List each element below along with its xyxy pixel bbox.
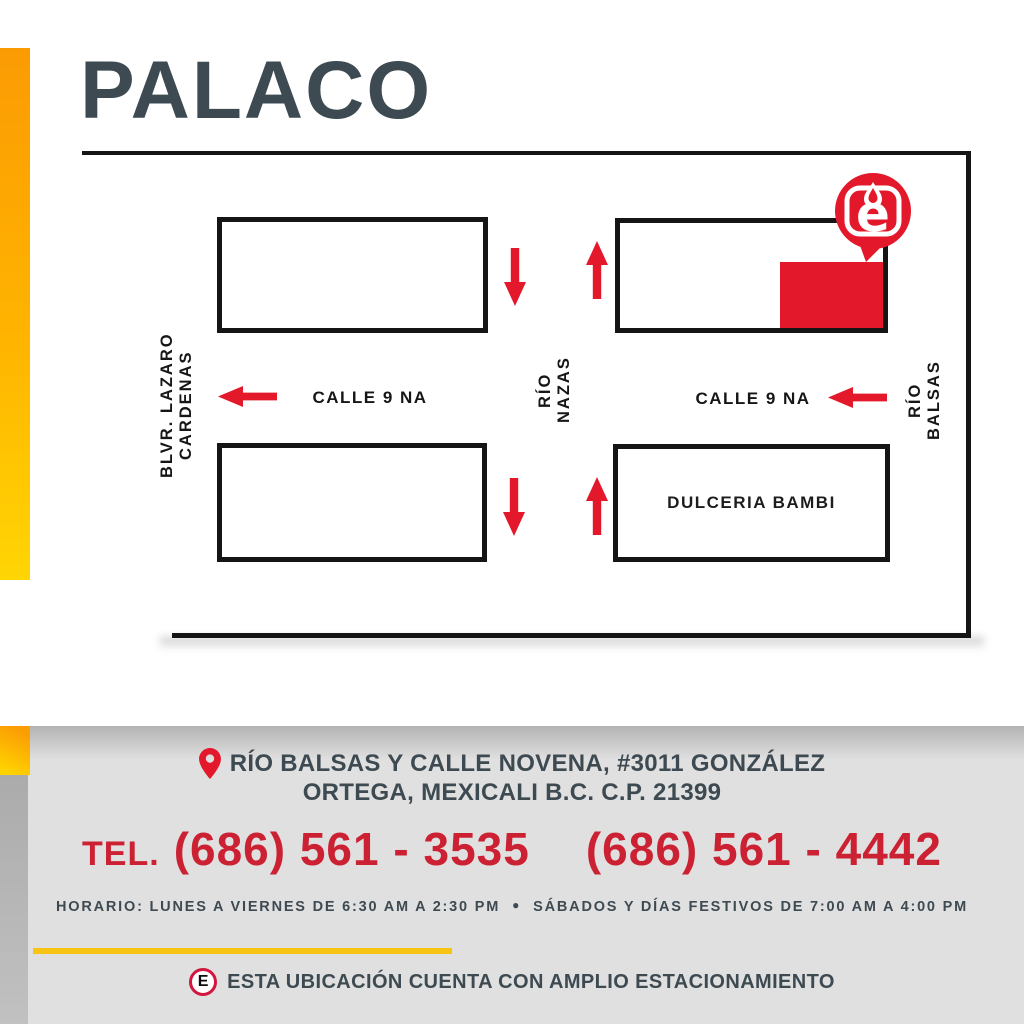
phone-block: TEL. (686) 561 - 3535 (686) 561 - 4442 bbox=[0, 822, 1024, 876]
hours-block: HORARIO: LUNES A VIERNES DE 6:30 AM A 2:… bbox=[0, 898, 1024, 915]
street-label-rio-balsas: RÍO BALSAS bbox=[906, 341, 944, 459]
left-accent-stripe bbox=[0, 726, 30, 775]
address-line2: ORTEGA, MEXICALI B.C. C.P. 21399 bbox=[0, 779, 1024, 807]
left-orange-stripe bbox=[0, 48, 30, 580]
arrow-left-icon bbox=[218, 386, 277, 407]
hours-weekdays: HORARIO: LUNES A VIERNES DE 6:30 AM A 2:… bbox=[56, 899, 500, 915]
left-gray-stripe bbox=[0, 775, 28, 1024]
arrow-up-icon bbox=[586, 477, 608, 535]
map-border-top bbox=[82, 151, 970, 155]
map-shadow bbox=[160, 637, 984, 650]
arrow-down-icon bbox=[504, 248, 526, 306]
parking-note: ESTA UBICACIÓN CUENTA CON AMPLIO ESTACIO… bbox=[227, 971, 835, 994]
flyer-page: PALACO DULCERIA BAMBI BLVR. LAZARO CARDE… bbox=[0, 0, 1024, 1024]
city-block-lower-left bbox=[217, 443, 487, 562]
address-line1: RÍO BALSAS Y CALLE NOVENA, #3011 GONZÁLE… bbox=[230, 750, 826, 778]
destination-lot bbox=[780, 262, 883, 328]
brand-pin-icon: e bbox=[834, 172, 913, 264]
location-pin-icon bbox=[199, 748, 221, 779]
phone-number-1: (686) 561 - 3535 bbox=[174, 822, 530, 876]
phone-number-2: (686) 561 - 4442 bbox=[586, 822, 942, 876]
arrow-down-icon bbox=[503, 478, 525, 536]
street-label-calle-9na-left: CALLE 9 NA bbox=[300, 388, 440, 408]
city-block-dulceria: DULCERIA BAMBI bbox=[613, 444, 890, 562]
street-label-calle-9na-right: CALLE 9 NA bbox=[688, 389, 818, 409]
parking-e-icon: E bbox=[189, 968, 217, 996]
arrow-left-icon bbox=[828, 387, 887, 408]
address-block: RÍO BALSAS Y CALLE NOVENA, #3011 GONZÁLE… bbox=[0, 748, 1024, 807]
page-title: PALACO bbox=[80, 50, 432, 132]
street-label-rio-nazas: RÍO NAZAS bbox=[536, 336, 574, 444]
parking-note-block: E ESTA UBICACIÓN CUENTA CON AMPLIO ESTAC… bbox=[0, 968, 1024, 996]
hours-weekend: SÁBADOS Y DÍAS FESTIVOS DE 7:00 AM A 4:0… bbox=[533, 899, 968, 915]
yellow-divider bbox=[33, 948, 452, 954]
dulceria-bambi-label: DULCERIA BAMBI bbox=[667, 493, 836, 513]
map-border-right bbox=[966, 151, 971, 638]
arrow-up-icon bbox=[586, 241, 608, 299]
bullet-separator: ● bbox=[512, 898, 521, 912]
street-label-lazaro-cardenas: BLVR. LAZARO CARDENAS bbox=[158, 283, 196, 527]
tel-label: TEL. bbox=[82, 835, 160, 874]
city-block-upper-left bbox=[217, 217, 488, 333]
